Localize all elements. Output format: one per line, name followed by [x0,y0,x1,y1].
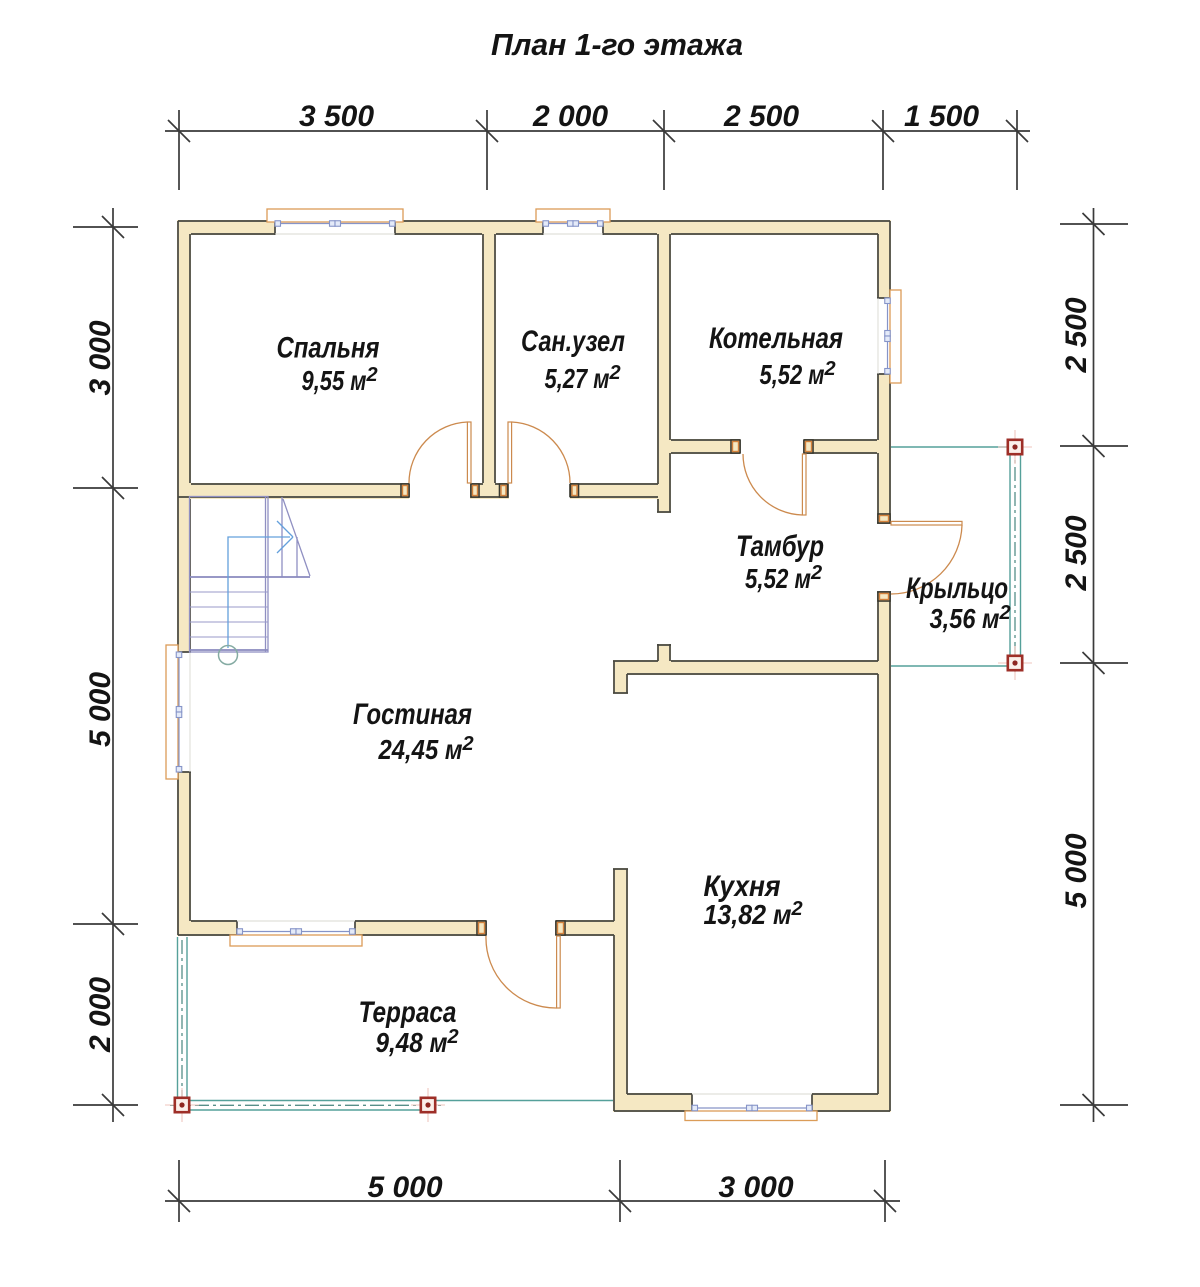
svg-text:Сан.узел: Сан.узел [521,325,625,358]
svg-text:Крыльцо: Крыльцо [906,572,1008,605]
svg-text:План 1-го этажа: План 1-го этажа [491,27,743,62]
svg-text:2: 2 [999,602,1011,624]
svg-text:Спальня: Спальня [277,332,380,365]
svg-text:2: 2 [609,362,621,384]
svg-text:3,56 м: 3,56 м [930,603,1000,634]
svg-text:5 000: 5 000 [1060,833,1093,908]
svg-text:3 000: 3 000 [718,1171,793,1204]
svg-text:2 500: 2 500 [1060,515,1093,591]
svg-text:5,27 м: 5,27 м [545,363,610,394]
svg-text:3 500: 3 500 [299,100,374,133]
svg-text:5 000: 5 000 [84,672,117,747]
svg-text:5,52 м: 5,52 м [745,563,811,594]
svg-text:2 500: 2 500 [723,100,799,133]
svg-text:3 000: 3 000 [84,320,117,395]
svg-text:2 500: 2 500 [1060,297,1093,373]
svg-text:13,82 м: 13,82 м [704,899,792,930]
svg-text:Гостиная: Гостиная [353,698,472,731]
svg-text:1 500: 1 500 [904,100,979,133]
svg-text:Терраса: Терраса [359,996,457,1029]
svg-text:2: 2 [366,364,378,386]
svg-text:2: 2 [447,1026,459,1048]
svg-text:2 000: 2 000 [532,100,608,133]
svg-text:Котельная: Котельная [709,322,843,355]
svg-text:2: 2 [824,358,836,380]
svg-text:24,45 м: 24,45 м [378,734,463,765]
svg-text:2: 2 [810,562,822,584]
svg-text:2: 2 [791,898,803,920]
svg-text:2 000: 2 000 [84,977,117,1053]
svg-text:9,55 м: 9,55 м [302,365,367,396]
svg-text:5 000: 5 000 [367,1171,442,1204]
svg-text:2: 2 [462,733,474,755]
svg-text:5,52 м: 5,52 м [760,359,825,390]
svg-text:Тамбур: Тамбур [736,530,824,563]
svg-text:9,48 м: 9,48 м [376,1027,448,1058]
